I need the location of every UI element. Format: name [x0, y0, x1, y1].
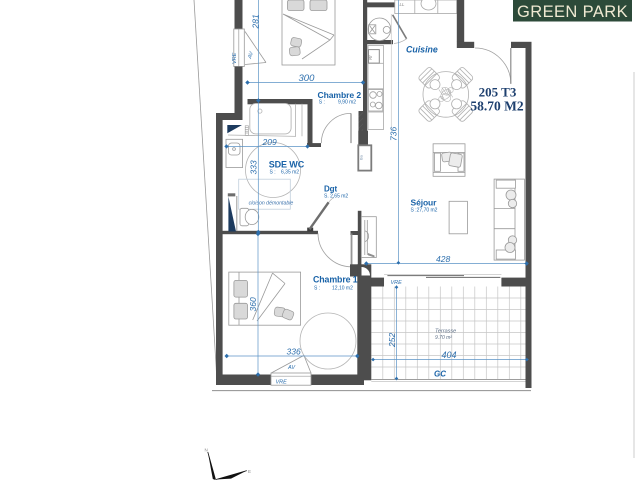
svg-text:VRE: VRE: [232, 52, 238, 64]
svg-text:Dgt: Dgt: [324, 185, 337, 194]
svg-text:Terrasse: Terrasse: [435, 329, 456, 335]
svg-text:Séjour: Séjour: [411, 198, 438, 208]
svg-text:N: N: [205, 448, 208, 453]
svg-text:VRE: VRE: [391, 280, 403, 286]
svg-text:cloison démontable: cloison démontable: [249, 201, 294, 207]
svg-text:S :: S :: [270, 170, 276, 176]
svg-text:58.70 M2: 58.70 M2: [470, 99, 523, 114]
svg-text:S :: S :: [314, 286, 320, 292]
svg-text:GREEN PARK: GREEN PARK: [517, 3, 628, 21]
svg-text:S :: S :: [319, 100, 325, 106]
svg-text:Ba: Ba: [359, 154, 364, 160]
svg-text:209: 209: [262, 137, 277, 147]
svg-text:Chambre 1: Chambre 1: [313, 275, 358, 285]
svg-text:336: 336: [287, 347, 301, 357]
svg-text:AV: AV: [287, 365, 296, 371]
svg-text:428: 428: [436, 254, 450, 264]
svg-text:Cuisine: Cuisine: [406, 45, 438, 55]
svg-text:6,35 m2: 6,35 m2: [281, 170, 299, 176]
svg-text:SDE WC: SDE WC: [269, 160, 305, 170]
svg-text:S. 2,65 m2: S. 2,65 m2: [324, 194, 348, 200]
svg-text:9.70 m²: 9.70 m²: [435, 335, 452, 341]
svg-text:12,10 m2: 12,10 m2: [332, 286, 353, 292]
svg-text:252: 252: [387, 333, 397, 348]
svg-text:LL: LL: [400, 2, 406, 7]
svg-text:333: 333: [249, 160, 259, 174]
svg-text:300: 300: [299, 73, 316, 84]
svg-text:281: 281: [251, 14, 261, 29]
svg-text:VRE: VRE: [276, 380, 288, 386]
svg-text:205 T3: 205 T3: [479, 85, 517, 100]
svg-text:9,90 m2: 9,90 m2: [338, 100, 356, 106]
svg-text:360: 360: [248, 297, 258, 311]
svg-text:GC: GC: [434, 370, 446, 379]
svg-text:736: 736: [389, 127, 399, 141]
svg-text:Chambre 2: Chambre 2: [318, 90, 362, 100]
svg-text:Rf: Rf: [368, 55, 373, 60]
svg-text:404: 404: [442, 350, 457, 360]
svg-text:E: E: [248, 469, 251, 474]
svg-text:S :27,70 m2: S :27,70 m2: [411, 208, 438, 214]
